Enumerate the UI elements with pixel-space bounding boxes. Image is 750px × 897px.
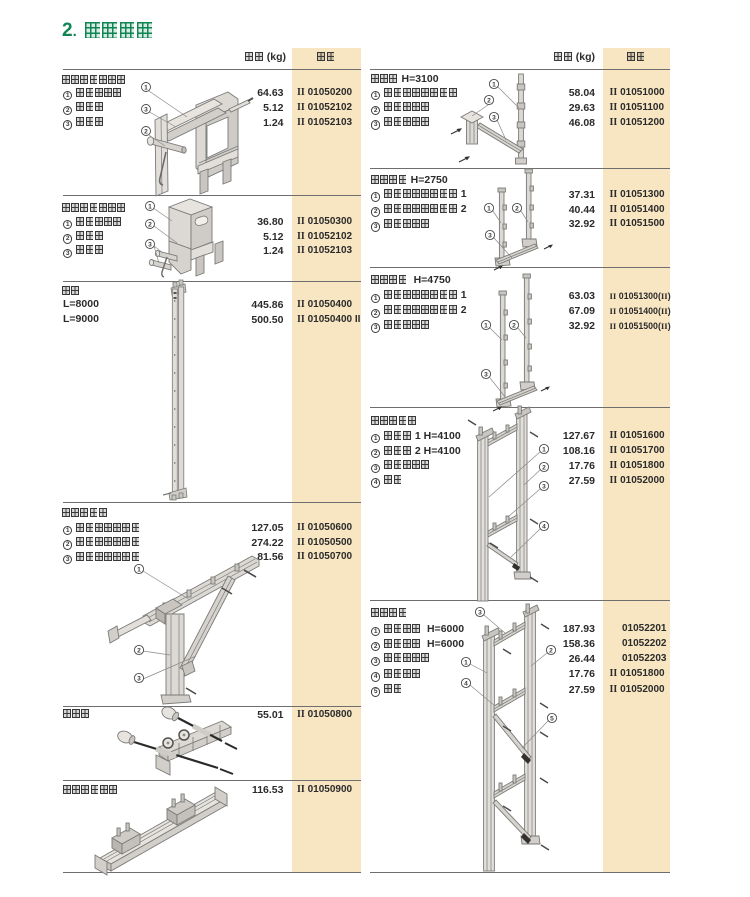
svg-text:2: 2 <box>487 98 491 105</box>
svg-text:1: 1 <box>492 82 496 89</box>
svg-text:1: 1 <box>137 567 141 574</box>
svg-text:3: 3 <box>478 610 482 617</box>
svg-text:2: 2 <box>549 648 553 655</box>
svg-text:5: 5 <box>550 716 554 723</box>
svg-text:1: 1 <box>464 660 468 667</box>
svg-text:2: 2 <box>515 206 519 213</box>
svg-text:1: 1 <box>144 85 148 92</box>
svg-text:4: 4 <box>464 681 468 688</box>
svg-text:3: 3 <box>144 107 148 114</box>
svg-text:2: 2 <box>512 323 516 330</box>
svg-text:3: 3 <box>488 233 492 240</box>
svg-text:3: 3 <box>542 484 546 491</box>
svg-text:2: 2 <box>137 648 141 655</box>
svg-text:1: 1 <box>484 323 488 330</box>
svg-text:3: 3 <box>137 676 141 683</box>
svg-text:1: 1 <box>148 204 152 211</box>
svg-text:2: 2 <box>148 222 152 229</box>
svg-text:1: 1 <box>487 206 491 213</box>
svg-text:3: 3 <box>148 242 152 249</box>
svg-text:2: 2 <box>144 129 148 136</box>
svg-text:3: 3 <box>484 372 488 379</box>
svg-text:1: 1 <box>542 447 546 454</box>
svg-text:3: 3 <box>492 115 496 122</box>
svg-text:4: 4 <box>542 524 546 531</box>
svg-text:2: 2 <box>542 465 546 472</box>
